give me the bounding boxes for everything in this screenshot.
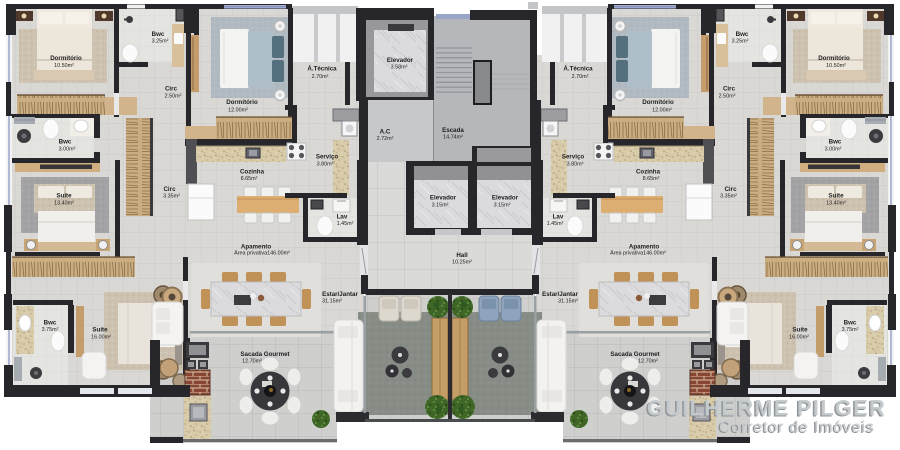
svg-text:Circ: Circ	[723, 86, 736, 93]
svg-text:16.00m²: 16.00m²	[789, 335, 809, 341]
svg-text:14.74m²: 14.74m²	[443, 135, 463, 141]
svg-text:31.15m²: 31.15m²	[558, 299, 578, 305]
svg-text:Bwc: Bwc	[736, 31, 749, 38]
svg-text:Bwc: Bwc	[44, 320, 57, 327]
svg-text:Cozinha: Cozinha	[636, 169, 661, 176]
svg-text:Suíte: Suíte	[792, 327, 808, 334]
svg-text:3.00m²: 3.00m²	[825, 147, 842, 153]
svg-text:3.75m²: 3.75m²	[842, 327, 859, 333]
svg-text:12.70m²: 12.70m²	[638, 359, 658, 365]
svg-text:Bwc: Bwc	[59, 139, 72, 146]
svg-text:Suíte: Suíte	[56, 193, 72, 200]
svg-text:Á.Técnica: Á.Técnica	[307, 66, 337, 73]
svg-text:Circ: Circ	[165, 86, 178, 93]
svg-text:Corretor de Imóveis: Corretor de Imóveis	[719, 419, 875, 436]
svg-text:Bwc: Bwc	[829, 139, 842, 146]
svg-text:2.72m²: 2.72m²	[377, 136, 394, 142]
svg-text:3.80m²: 3.80m²	[317, 162, 334, 168]
svg-text:Dormitório: Dormitório	[818, 55, 850, 62]
svg-text:3.00m²: 3.00m²	[59, 147, 76, 153]
svg-text:Dormitório: Dormitório	[226, 99, 258, 106]
svg-text:10.50m²: 10.50m²	[54, 63, 74, 69]
svg-text:1.45m²: 1.45m²	[337, 221, 354, 227]
svg-text:Serviço: Serviço	[562, 154, 585, 161]
svg-text:3.25m²: 3.25m²	[732, 39, 749, 45]
svg-text:Serviço: Serviço	[316, 154, 339, 161]
svg-text:10.50m²: 10.50m²	[826, 63, 846, 69]
svg-text:Bwc: Bwc	[152, 31, 165, 38]
svg-text:GUILHERME PILGER: GUILHERME PILGER	[647, 396, 886, 421]
svg-text:1.45m²: 1.45m²	[547, 221, 564, 227]
svg-text:Apamento: Apamento	[629, 244, 659, 251]
svg-text:Sacada Gourmet: Sacada Gourmet	[610, 351, 659, 358]
svg-text:Sacada Gourmet: Sacada Gourmet	[240, 351, 289, 358]
svg-text:Elevador: Elevador	[387, 57, 414, 64]
svg-text:Elevador: Elevador	[492, 195, 519, 202]
svg-text:Lav: Lav	[553, 214, 564, 221]
svg-text:3.80m²: 3.80m²	[567, 162, 584, 168]
svg-text:2.70m²: 2.70m²	[572, 74, 589, 80]
svg-text:12.00m²: 12.00m²	[228, 108, 248, 114]
svg-text:Escada: Escada	[442, 127, 464, 134]
svg-text:2.50m²: 2.50m²	[165, 94, 182, 100]
svg-text:Dormitório: Dormitório	[642, 99, 674, 106]
svg-text:Lav: Lav	[337, 214, 348, 221]
svg-text:Área privativa146.00m²: Área privativa146.00m²	[610, 250, 666, 257]
svg-text:8.65m²: 8.65m²	[643, 176, 660, 182]
svg-text:Hall: Hall	[456, 252, 468, 259]
svg-text:Circ: Circ	[724, 186, 737, 193]
svg-text:Elevador: Elevador	[430, 195, 457, 202]
svg-text:Suíte: Suíte	[92, 327, 108, 334]
svg-text:Área privativa146.00m²: Área privativa146.00m²	[234, 250, 290, 257]
svg-text:Bwc: Bwc	[844, 320, 857, 327]
svg-text:3.35m²: 3.35m²	[163, 194, 180, 200]
svg-text:12.00m²: 12.00m²	[652, 108, 672, 114]
svg-text:Circ: Circ	[163, 186, 176, 193]
svg-text:3.15m²: 3.15m²	[432, 203, 449, 209]
svg-text:8.65m²: 8.65m²	[241, 176, 258, 182]
svg-text:10.25m²: 10.25m²	[452, 260, 472, 266]
svg-text:A.C: A.C	[380, 129, 391, 136]
svg-text:3.15m²: 3.15m²	[494, 203, 511, 209]
svg-text:16.00m²: 16.00m²	[91, 335, 111, 341]
svg-text:3.35m²: 3.35m²	[720, 194, 737, 200]
svg-text:3.25m²: 3.25m²	[152, 39, 169, 45]
svg-text:2.50m²: 2.50m²	[719, 94, 736, 100]
svg-text:3.75m²: 3.75m²	[42, 327, 59, 333]
svg-text:Suíte: Suíte	[828, 193, 844, 200]
svg-text:31.15m²: 31.15m²	[322, 299, 342, 305]
svg-text:13.40m²: 13.40m²	[826, 201, 846, 207]
svg-text:Dormitório: Dormitório	[50, 55, 82, 62]
svg-text:Estar/Jantar: Estar/Jantar	[542, 291, 578, 298]
svg-text:2.70m²: 2.70m²	[312, 74, 329, 80]
svg-text:Estar/Jantar: Estar/Jantar	[322, 291, 358, 298]
svg-text:12.70m²: 12.70m²	[242, 359, 262, 365]
svg-text:Apamento: Apamento	[241, 244, 271, 251]
svg-text:Á.Técnica: Á.Técnica	[563, 66, 593, 73]
svg-text:Cozinha: Cozinha	[240, 169, 265, 176]
svg-text:13.40m²: 13.40m²	[54, 201, 74, 207]
svg-text:3.58m²: 3.58m²	[391, 65, 408, 71]
